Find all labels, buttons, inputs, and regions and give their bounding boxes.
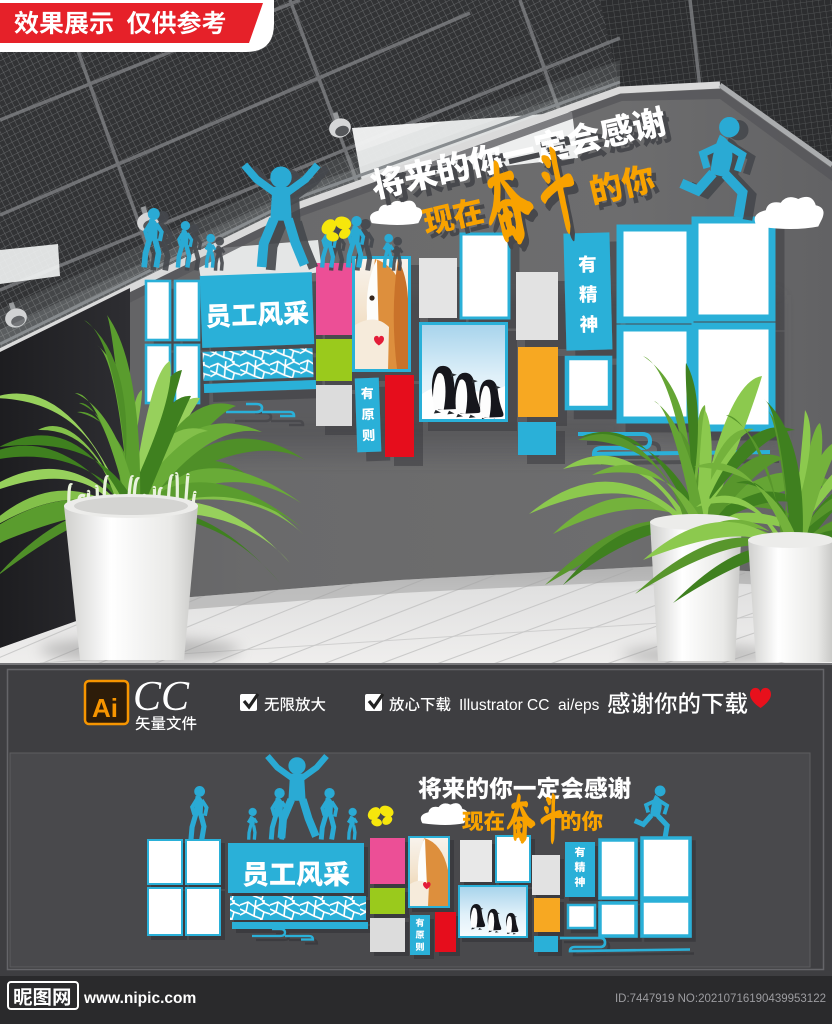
svg-text:Ai: Ai <box>92 693 118 723</box>
svg-text:CC: CC <box>133 674 190 720</box>
svg-text:Illustrator CC ai/eps: Illustrator CC ai/eps <box>459 697 600 714</box>
svg-text:ID:7447919 NO:2021071619043995: ID:7447919 NO:20210716190439953122 <box>615 993 826 1005</box>
svg-text:www.nipic.com: www.nipic.com <box>83 990 196 1007</box>
